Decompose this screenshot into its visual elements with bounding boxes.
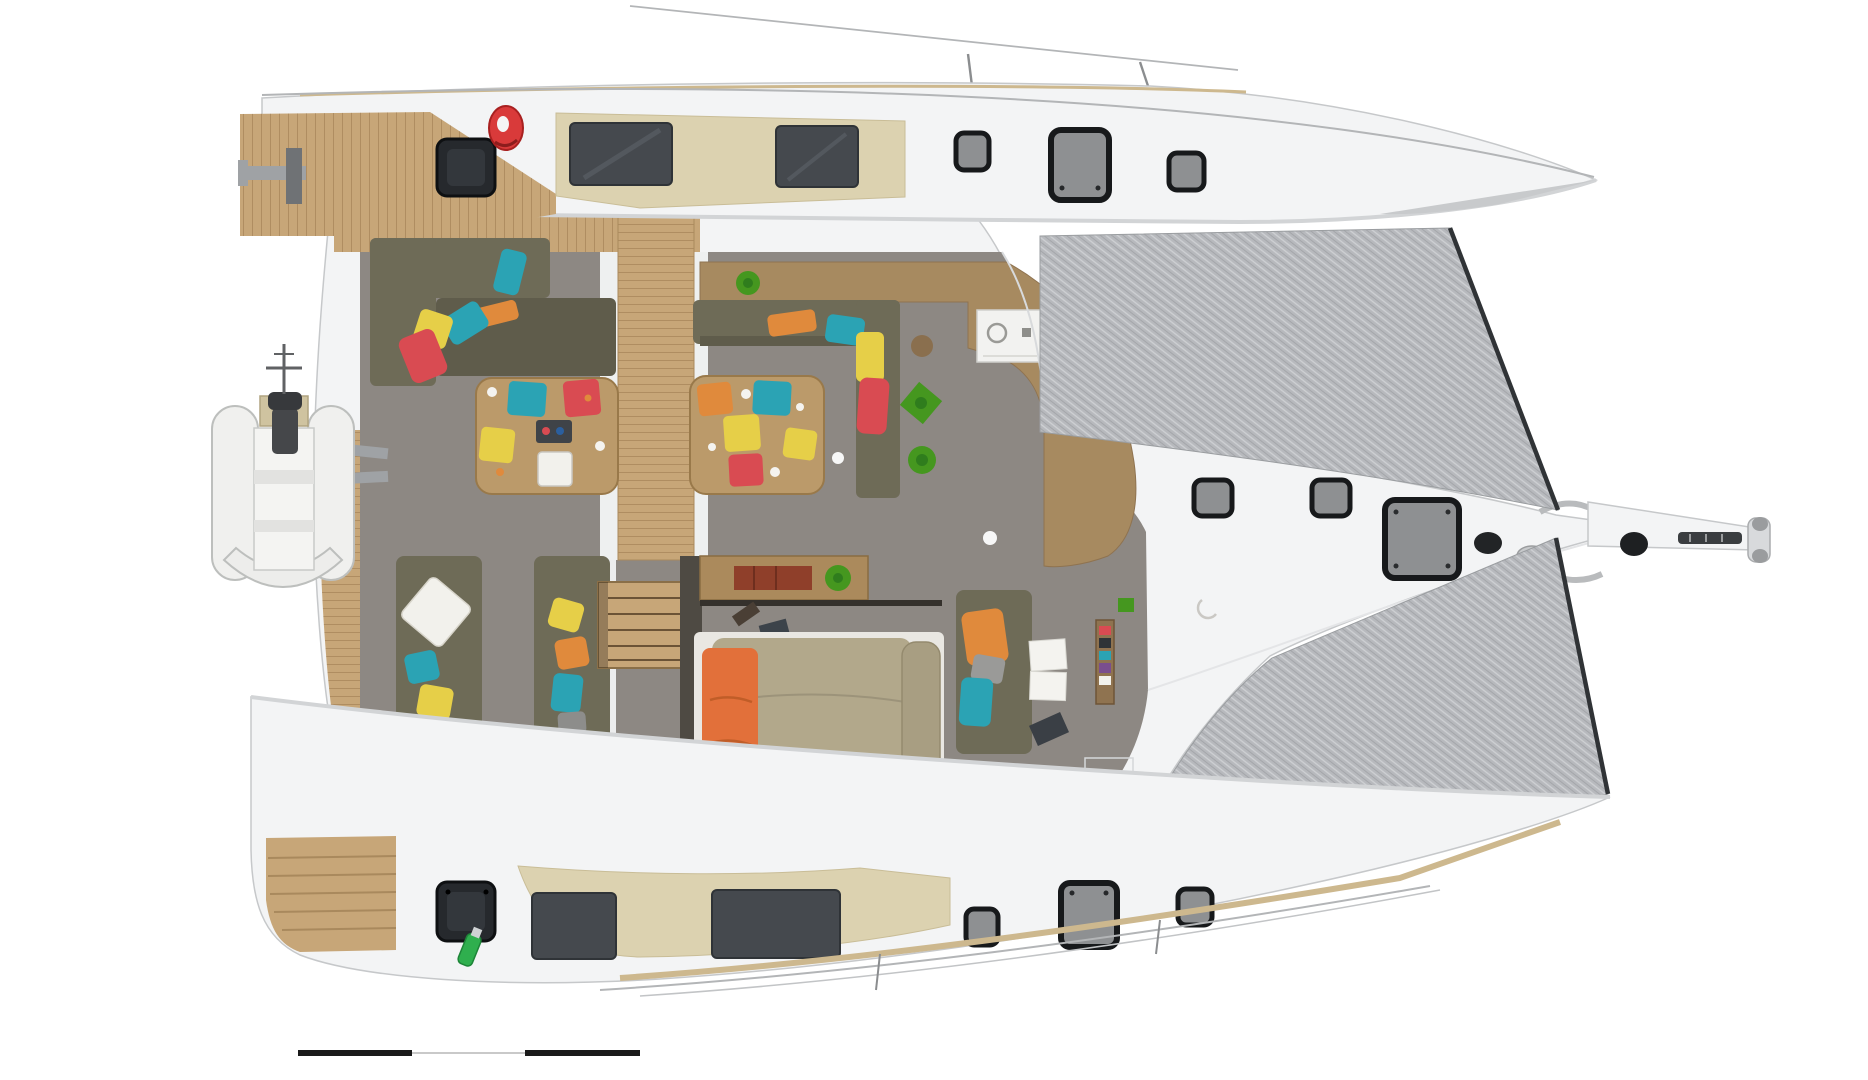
cabin-desk-seat [956, 590, 1032, 754]
scale-segment-light [412, 1052, 525, 1054]
desk-edge [700, 600, 942, 606]
tray [734, 566, 812, 590]
seat-cushion [507, 381, 547, 418]
seat-cushion [478, 426, 515, 463]
deck-hatch-large [1385, 500, 1459, 578]
stern-teak-steps-bottom [266, 836, 396, 952]
stove-knob-icon [1022, 328, 1031, 337]
papers [1030, 671, 1067, 700]
cleat-icon [1474, 532, 1502, 554]
deck-hatch [1312, 480, 1350, 516]
scale-segment-dark [525, 1050, 640, 1056]
pot-icon [911, 335, 933, 357]
plant-icon [1118, 598, 1134, 612]
companionway-stairs [598, 582, 682, 668]
hull-window [570, 123, 672, 185]
tray [536, 420, 572, 443]
dinghy-seat [254, 470, 314, 484]
deck-plan-stage [0, 0, 1868, 1080]
deck-hatch [1169, 153, 1204, 190]
saloon-table [690, 376, 824, 494]
shroud-line [630, 6, 1238, 70]
seat-cushion [728, 453, 764, 487]
scale-bar [298, 1050, 640, 1056]
stanchion [876, 954, 880, 990]
hull-window [776, 126, 858, 187]
dinghy-seat [254, 520, 314, 532]
anchor-roller [1752, 517, 1768, 531]
bookshelf [1096, 620, 1114, 704]
cleat-icon [1620, 532, 1648, 556]
cabin-shelf [700, 556, 868, 600]
galley-sink-unit [977, 310, 1043, 362]
seat-cushion [538, 452, 572, 486]
hull-window [532, 893, 616, 959]
coachroof-coaming-top [556, 113, 905, 208]
bowsprit [1588, 502, 1770, 563]
stern-hatch-dark [437, 139, 495, 196]
deck-hatch-large [1051, 130, 1109, 200]
papers [1029, 639, 1067, 671]
seat-cushion [782, 427, 818, 461]
seat-cushion [562, 378, 601, 417]
scale-segment-dark [298, 1050, 412, 1056]
antenna-cross [266, 344, 302, 394]
stern-hatch-dark [437, 882, 495, 941]
outboard-motor [272, 408, 298, 454]
yacht-deck-plan-rendering [0, 0, 1868, 1080]
life-ring [489, 106, 523, 150]
seat-cushion [696, 381, 733, 416]
pillow [550, 673, 584, 714]
seat-cushion [752, 380, 792, 416]
cockpit-table [476, 378, 618, 494]
hull-top [238, 83, 1596, 236]
ceiling-light-dot [983, 531, 997, 545]
anchor-roller [1752, 549, 1768, 563]
pillow [856, 332, 884, 382]
ceiling-light-dot [832, 452, 844, 464]
deck-hatch [956, 133, 989, 170]
seat-cushion [723, 414, 761, 452]
deck-hatch [1194, 480, 1232, 516]
pillow [554, 635, 591, 670]
pillow [958, 677, 993, 727]
hull-window [712, 890, 840, 958]
outboard-motor-head [268, 392, 302, 410]
pillow [856, 377, 890, 435]
